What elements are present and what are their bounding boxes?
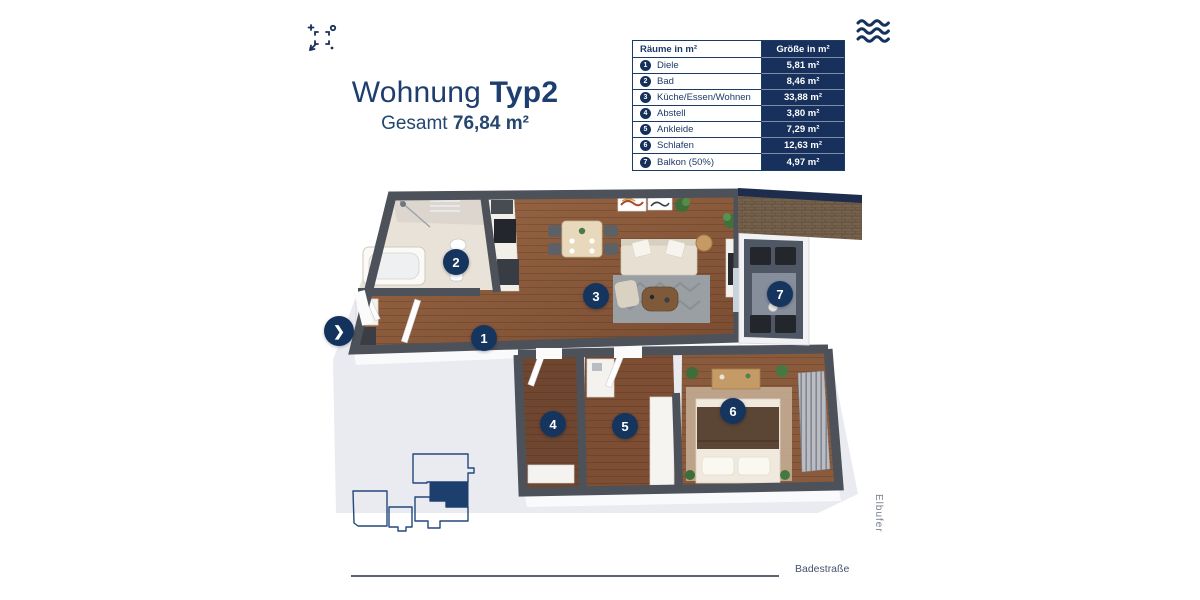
table-header-rooms: Räume in m² — [633, 41, 761, 58]
table-row: 6Schlafen 12,63 m² — [633, 138, 844, 154]
keyplan-highlighted-unit[interactable] — [430, 482, 468, 507]
apartment-title: Wohnung Typ2 — [330, 76, 580, 110]
room-number-badge: 6 — [640, 140, 651, 151]
plan-room-badge-abstell: 4 — [540, 411, 566, 437]
room-name: Schlafen — [657, 140, 694, 151]
room-size: 33,88 m² — [761, 90, 844, 106]
building-key-plan[interactable] — [340, 440, 500, 550]
total-label: Gesamt — [381, 113, 448, 134]
plan-room-badge-ankleide: 5 — [612, 413, 638, 439]
keyplan-left-block — [353, 491, 387, 526]
table-row: 3Küche/Essen/Wohnen 33,88 m² — [633, 90, 844, 106]
apartment-title-variant: Typ2 — [490, 76, 559, 109]
floorplan-viewer: Wohnung Typ2 Gesamt 76,84 m² Räume in m²… — [0, 0, 1200, 600]
room-name: Küche/Essen/Wohnen — [657, 92, 751, 103]
plan-room-badge-diele: 1 — [471, 325, 497, 351]
room-size: 7,29 m² — [761, 122, 844, 138]
street-line — [351, 575, 779, 577]
room-size-table: Räume in m² Größe in m² 1Diele 5,81 m² 2… — [632, 40, 845, 171]
chevron-right-icon: ❯ — [333, 323, 345, 340]
plan-room-badge-bad: 2 — [443, 249, 469, 275]
table-row: 5Ankleide 7,29 m² — [633, 122, 844, 138]
table-row: 7Balkon (50%) 4,97 m² — [633, 154, 844, 170]
plan-room-badge-kueche-essen-wohnen: 3 — [583, 283, 609, 309]
street-label-badestrasse: Badestraße — [795, 563, 849, 575]
plan-room-badge-balkon: 7 — [767, 281, 793, 307]
apartment-total-area: Gesamt 76,84 m² — [330, 112, 580, 136]
page-title-block: Wohnung Typ2 Gesamt 76,84 m² — [330, 76, 580, 136]
room-name: Balkon (50%) — [657, 157, 714, 168]
room-number-badge: 3 — [640, 92, 651, 103]
plan-room-badge-schlafen: 6 — [720, 398, 746, 424]
street-label-elbufer: Elbufer — [873, 494, 884, 533]
room-number-badge: 1 — [640, 60, 651, 71]
room-number-badge: 5 — [640, 124, 651, 135]
room-size: 8,46 m² — [761, 74, 844, 90]
room-size: 3,80 m² — [761, 106, 844, 122]
room-size: 5,81 m² — [761, 58, 844, 74]
keyplan-mid-block — [389, 507, 412, 531]
room-number-badge: 2 — [640, 76, 651, 87]
room-size: 4,97 m² — [761, 154, 844, 170]
keyplan-top-block — [413, 454, 474, 483]
room-name: Ankleide — [657, 124, 693, 135]
balcony-canopy — [738, 188, 862, 240]
room-name: Abstell — [657, 108, 686, 119]
next-plan-button[interactable]: ❯ — [324, 316, 354, 346]
room-number-badge: 7 — [640, 157, 651, 168]
total-value: 76,84 m² — [453, 113, 529, 134]
fullscreen-expand-icon[interactable] — [306, 22, 338, 54]
room-number-badge: 4 — [640, 108, 651, 119]
water-waves-icon — [855, 18, 891, 46]
apartment-title-product: Wohnung — [352, 76, 481, 109]
table-row: 2Bad 8,46 m² — [633, 74, 844, 90]
table-header-size: Größe in m² — [761, 41, 844, 58]
table-row: 4Abstell 3,80 m² — [633, 106, 844, 122]
table-header-row: Räume in m² Größe in m² — [633, 41, 844, 58]
room-name: Diele — [657, 60, 679, 71]
table-row: 1Diele 5,81 m² — [633, 58, 844, 74]
room-name: Bad — [657, 76, 674, 87]
room-size: 12,63 m² — [761, 138, 844, 154]
